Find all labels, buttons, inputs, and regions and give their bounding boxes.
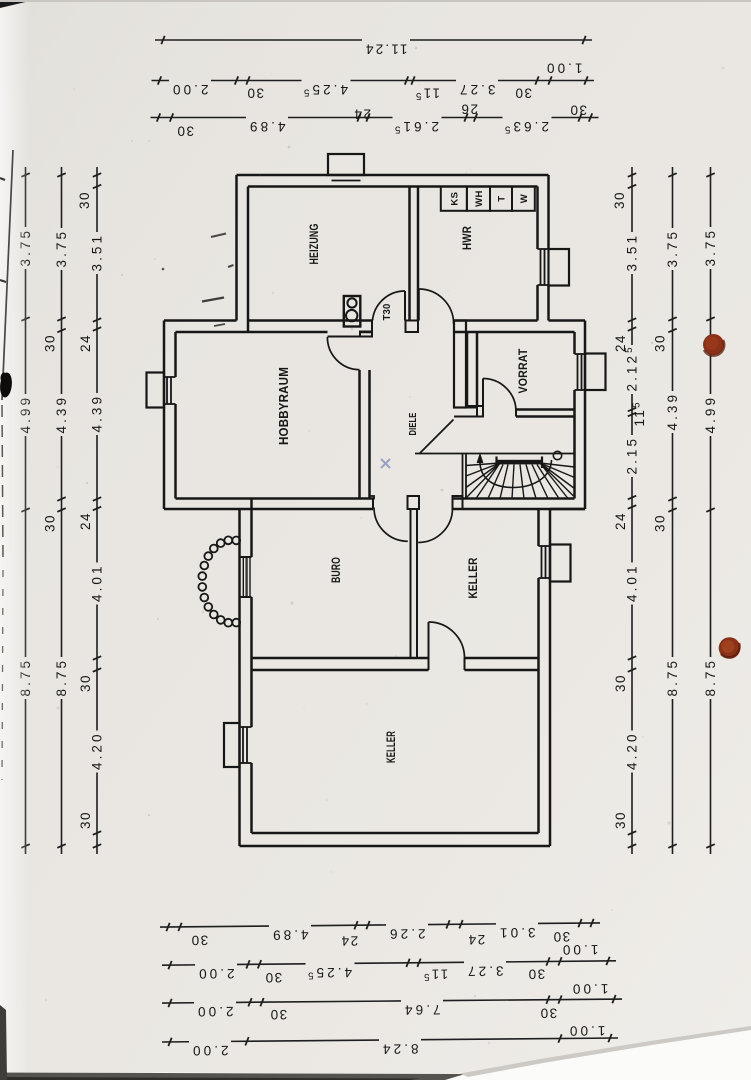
svg-text:30: 30 [612, 191, 627, 209]
svg-text:30: 30 [613, 674, 628, 692]
svg-text:4.39: 4.39 [90, 396, 105, 433]
svg-text:2.15: 2.15 [625, 438, 640, 475]
svg-text:30: 30 [264, 970, 282, 985]
svg-text:HEIZUNG: HEIZUNG [309, 224, 321, 265]
svg-text:24: 24 [78, 334, 93, 352]
svg-text:4.20: 4.20 [625, 733, 640, 770]
svg-text:30: 30 [43, 334, 58, 352]
svg-text:30: 30 [77, 191, 92, 209]
svg-text:30: 30 [527, 967, 545, 982]
svg-text:3.01: 3.01 [499, 925, 536, 940]
svg-text:2.26: 2.26 [389, 926, 426, 941]
svg-text:30: 30 [43, 514, 58, 532]
svg-text:24: 24 [340, 933, 358, 948]
svg-text:3.27: 3.27 [467, 963, 504, 978]
svg-text:8.24: 8.24 [382, 1041, 419, 1056]
svg-text:11.24: 11.24 [365, 42, 408, 57]
svg-text:26: 26 [460, 102, 478, 117]
svg-text:30: 30 [539, 1006, 557, 1021]
svg-text:3.51: 3.51 [625, 235, 640, 272]
svg-text:4.01: 4.01 [625, 565, 640, 602]
svg-text:24: 24 [353, 107, 371, 122]
svg-text:4.99: 4.99 [703, 397, 718, 434]
svg-text:1.00: 1.00 [568, 1023, 605, 1038]
svg-text:1.00: 1.00 [546, 61, 583, 76]
svg-text:1.00: 1.00 [571, 981, 608, 996]
svg-text:30: 30 [514, 86, 532, 101]
svg-text:8.75: 8.75 [54, 660, 69, 697]
svg-text:2.00: 2.00 [198, 966, 235, 981]
svg-text:1.00: 1.00 [561, 942, 598, 957]
svg-text:8.75: 8.75 [665, 660, 680, 697]
svg-text:4.89: 4.89 [272, 927, 309, 942]
svg-text:24: 24 [613, 512, 628, 530]
svg-text:DIELE: DIELE [407, 413, 419, 436]
svg-text:3.75: 3.75 [665, 231, 680, 268]
svg-text:2.00: 2.00 [197, 1004, 234, 1019]
svg-text:24: 24 [78, 512, 93, 530]
svg-text:4.39: 4.39 [665, 394, 680, 431]
svg-text:4.89: 4.89 [249, 119, 286, 134]
svg-text:30: 30 [78, 674, 93, 692]
svg-text:4.20: 4.20 [90, 733, 105, 770]
svg-text:3.51: 3.51 [90, 235, 105, 272]
svg-text:24: 24 [467, 932, 485, 947]
svg-text:3.75: 3.75 [703, 230, 718, 267]
svg-text:HWR: HWR [462, 226, 474, 250]
svg-text:30: 30 [552, 929, 570, 944]
svg-text:KS: KS [449, 192, 460, 206]
svg-text:30: 30 [176, 124, 194, 139]
svg-text:30: 30 [78, 811, 93, 829]
svg-text:30: 30 [246, 86, 264, 101]
svg-text:30: 30 [653, 334, 668, 352]
svg-text:7.64: 7.64 [404, 1002, 441, 1017]
svg-text:30: 30 [190, 933, 208, 948]
svg-text:VORRAT: VORRAT [516, 348, 530, 393]
svg-text:4.39: 4.39 [54, 397, 69, 434]
svg-text:BURO: BURO [331, 557, 343, 583]
svg-text:30: 30 [569, 103, 587, 118]
svg-text:WH: WH [474, 190, 485, 207]
svg-text:3.75: 3.75 [54, 231, 69, 268]
svg-text:8.75: 8.75 [703, 660, 718, 697]
svg-text:2.00: 2.00 [192, 1043, 229, 1058]
svg-text:30: 30 [613, 811, 628, 829]
svg-text:T: T [497, 195, 508, 201]
svg-text:4.01: 4.01 [90, 565, 105, 602]
svg-text:2.00: 2.00 [172, 82, 209, 97]
svg-text:HOBBYRAUM: HOBBYRAUM [277, 367, 291, 445]
svg-text:3.27: 3.27 [459, 82, 496, 97]
svg-text:T30: T30 [382, 303, 393, 320]
svg-text:W: W [519, 194, 530, 203]
svg-text:30: 30 [653, 514, 668, 532]
svg-text:30: 30 [269, 1007, 287, 1022]
svg-text:KELLER: KELLER [386, 731, 398, 763]
svg-text:KELLER: KELLER [466, 557, 480, 598]
